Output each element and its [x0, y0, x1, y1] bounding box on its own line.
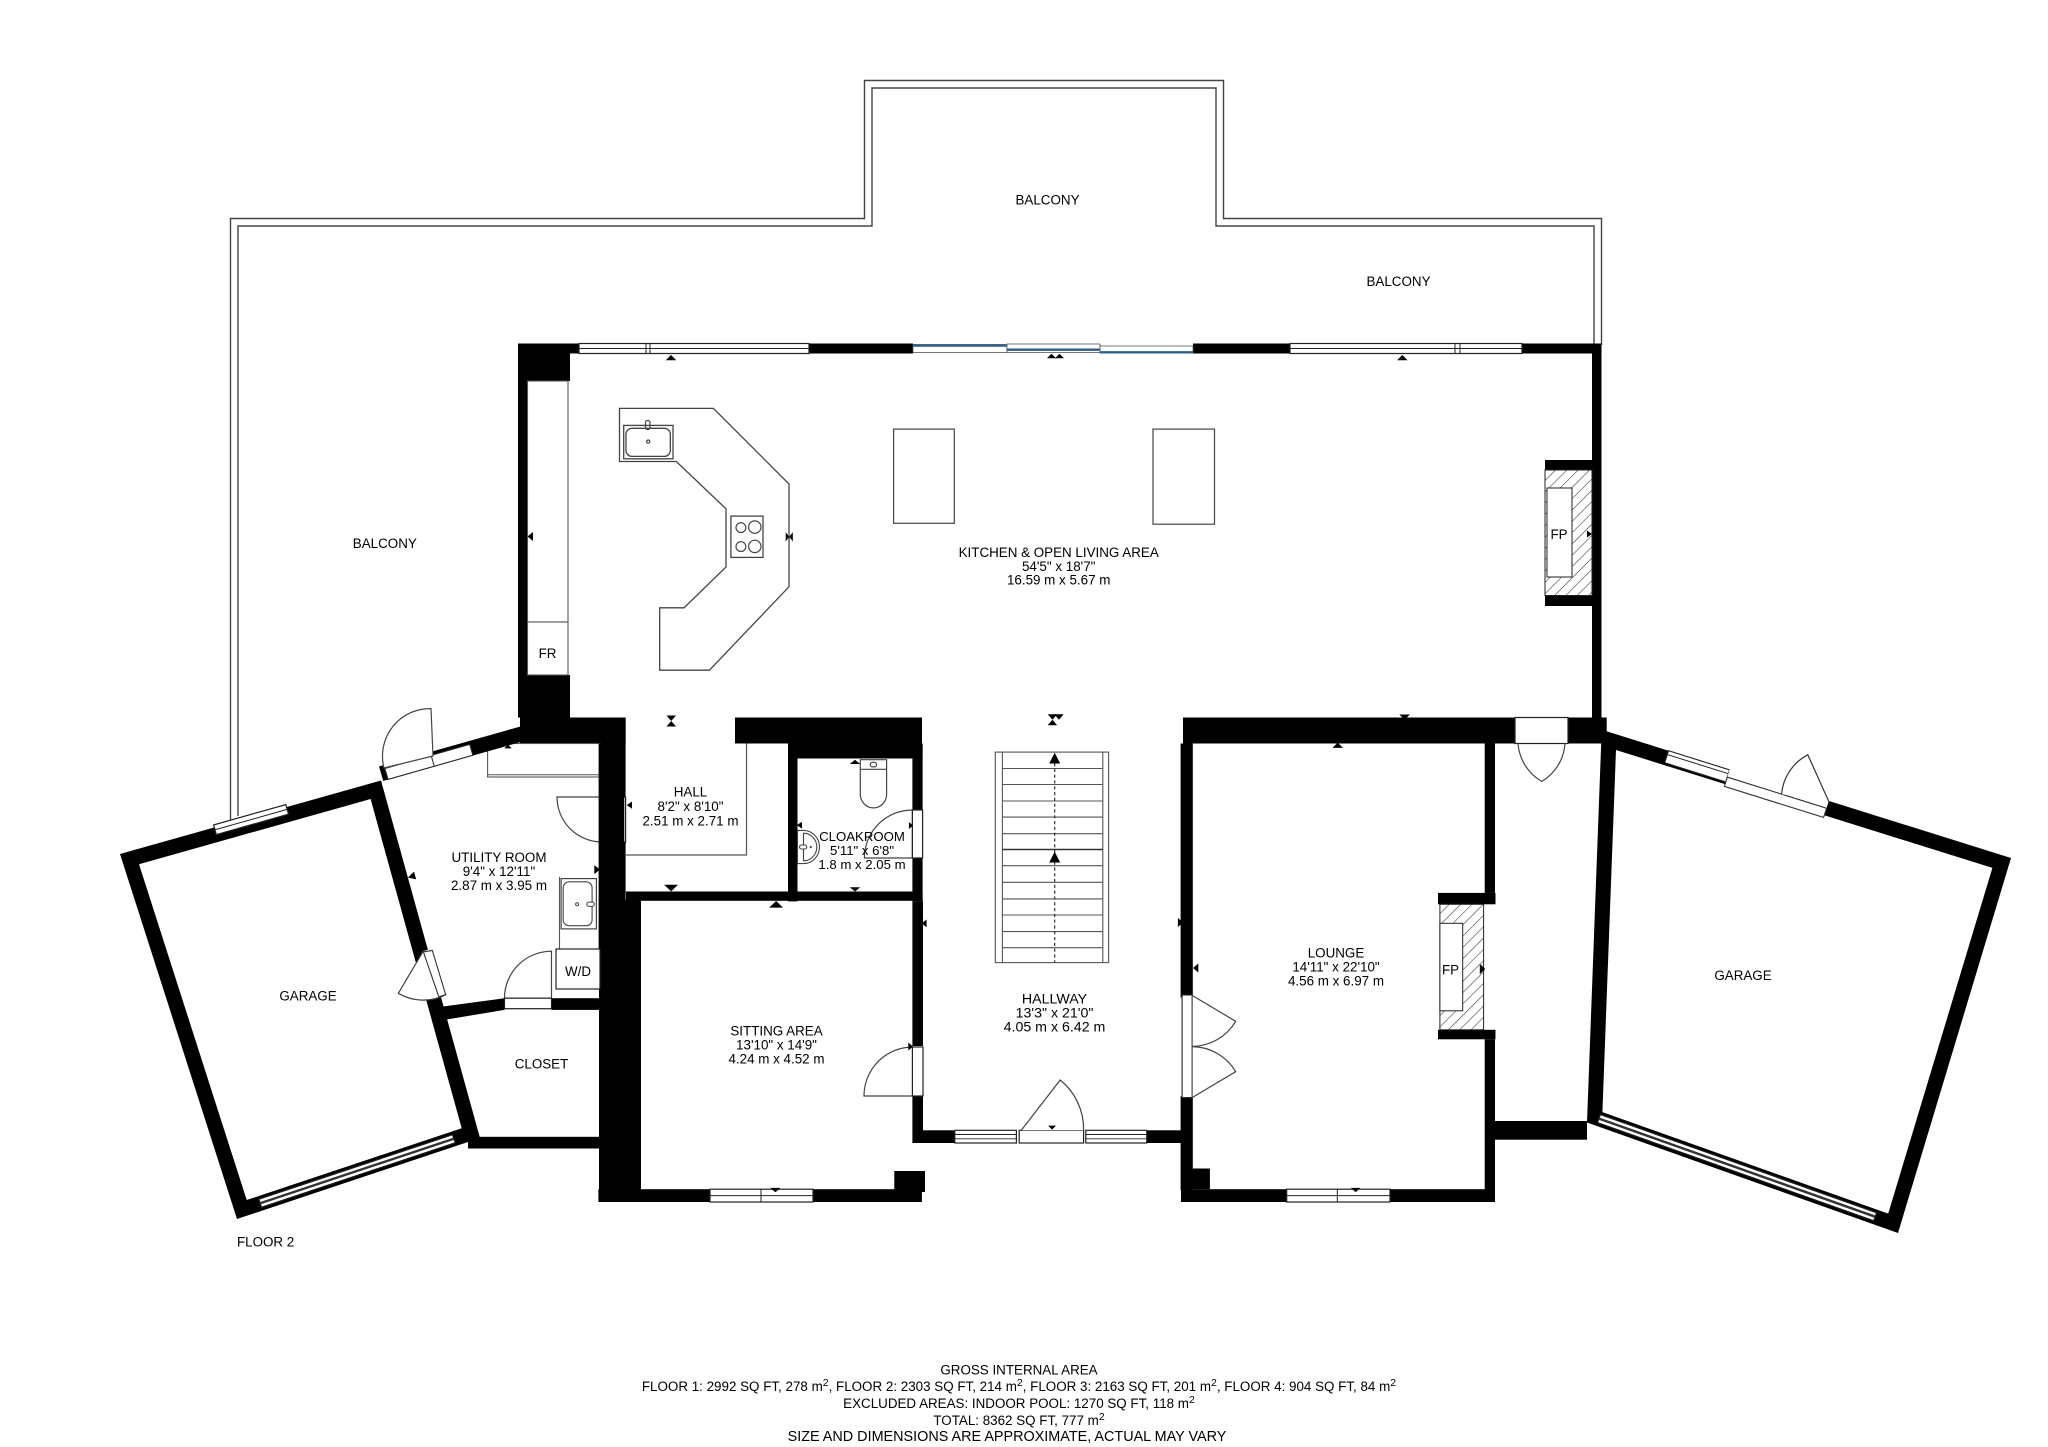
svg-text:9'4" x 12'11": 9'4" x 12'11" [463, 864, 536, 879]
svg-text:5'11" x 6'8": 5'11" x 6'8" [830, 843, 894, 858]
svg-text:GARAGE: GARAGE [279, 989, 336, 1004]
svg-text:4.05 m x 6.42 m: 4.05 m x 6.42 m [1004, 1019, 1106, 1035]
svg-text:KITCHEN & OPEN LIVING AREA: KITCHEN & OPEN LIVING AREA [959, 545, 1159, 560]
svg-text:14'11" x 22'10": 14'11" x 22'10" [1292, 960, 1380, 975]
svg-text:13'10" x 14'9": 13'10" x 14'9" [736, 1037, 817, 1052]
svg-text:8'2" x 8'10": 8'2" x 8'10" [658, 799, 724, 814]
svg-text:LOUNGE: LOUNGE [1308, 946, 1365, 961]
svg-text:CLOAKROOM: CLOAKROOM [819, 829, 905, 844]
svg-text:HALL: HALL [674, 784, 708, 799]
svg-text:16.59 m x 5.67 m: 16.59 m x 5.67 m [1007, 573, 1110, 588]
svg-text:GARAGE: GARAGE [1714, 968, 1771, 983]
svg-text:TOTAL: 8362 SQ FT, 777 m2: TOTAL: 8362 SQ FT, 777 m2 [933, 1411, 1104, 1428]
svg-text:CLOSET: CLOSET [515, 1057, 569, 1072]
svg-text:BALCONY: BALCONY [1367, 274, 1431, 289]
svg-text:GROSS INTERNAL AREA: GROSS INTERNAL AREA [940, 1362, 1097, 1377]
svg-text:EXCLUDED AREAS: INDOOR POOL: 1: EXCLUDED AREAS: INDOOR POOL: 1270 SQ FT,… [843, 1394, 1195, 1411]
svg-text:54'5" x 18'7": 54'5" x 18'7" [1022, 559, 1096, 574]
svg-text:BALCONY: BALCONY [353, 536, 417, 551]
svg-text:1.8 m x 2.05 m: 1.8 m x 2.05 m [818, 857, 905, 872]
svg-text:BALCONY: BALCONY [1016, 193, 1080, 208]
svg-text:FP: FP [1550, 527, 1567, 542]
svg-text:SITTING AREA: SITTING AREA [730, 1024, 822, 1039]
svg-text:2.51 m x 2.71 m: 2.51 m x 2.71 m [642, 813, 738, 828]
svg-text:FP: FP [1442, 963, 1459, 978]
svg-text:SIZE AND DIMENSIONS ARE APPROX: SIZE AND DIMENSIONS ARE APPROXIMATE, ACT… [788, 1429, 1227, 1445]
svg-text:2.87 m x 3.95 m: 2.87 m x 3.95 m [451, 878, 547, 893]
svg-text:FR: FR [539, 646, 557, 661]
svg-text:UTILITY ROOM: UTILITY ROOM [452, 850, 547, 865]
svg-text:FLOOR 2: FLOOR 2 [237, 1235, 294, 1250]
svg-text:4.24 m x 4.52 m: 4.24 m x 4.52 m [728, 1051, 824, 1066]
svg-text:W/D: W/D [565, 964, 591, 979]
svg-text:4.56 m x 6.97 m: 4.56 m x 6.97 m [1288, 973, 1384, 988]
